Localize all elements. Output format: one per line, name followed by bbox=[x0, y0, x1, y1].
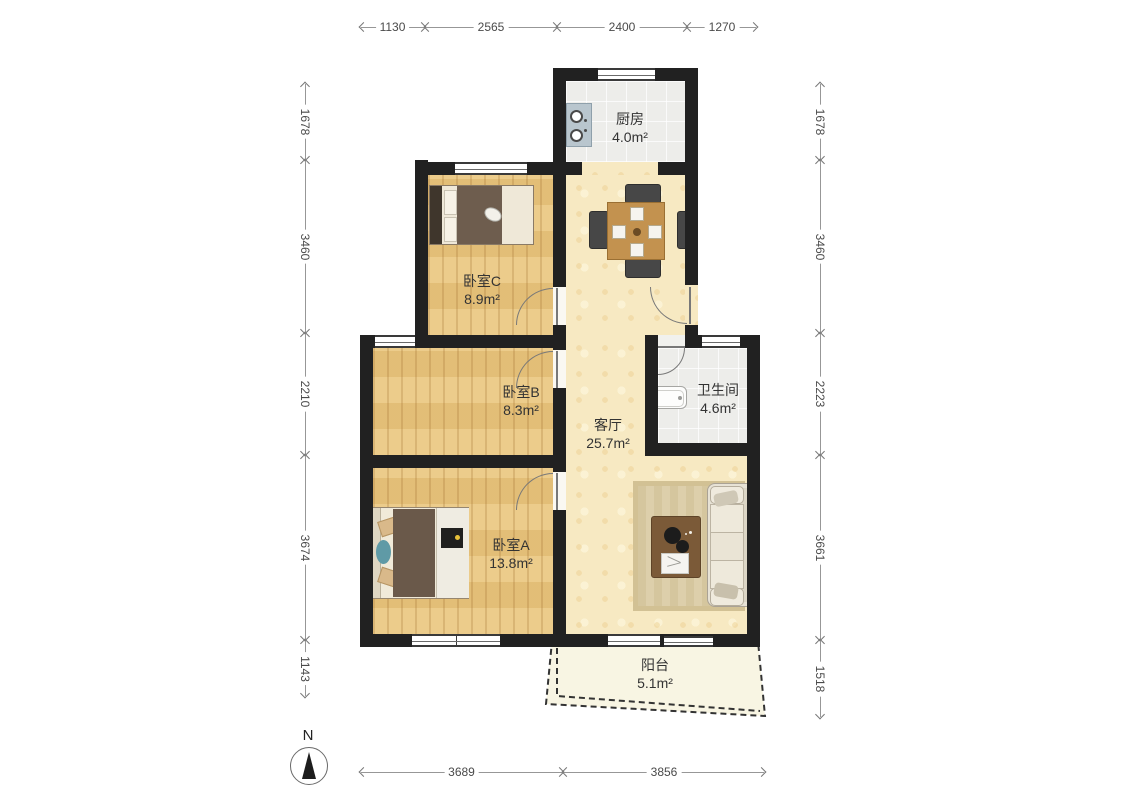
room-label-kitchen: 厨房 4.0m² bbox=[612, 110, 648, 146]
dim-bottom-1: 3689 bbox=[360, 764, 563, 780]
window-bedroom-c bbox=[455, 162, 527, 175]
room-label-bedroom-b: 卧室B 8.3m² bbox=[502, 383, 539, 419]
dim-right-4: 3661 bbox=[812, 455, 828, 640]
dim-top-2: 2565 bbox=[425, 19, 557, 35]
dining-chair bbox=[625, 258, 661, 278]
window-bedroom-b bbox=[375, 335, 415, 348]
dim-top-3: 2400 bbox=[557, 19, 687, 35]
dim-top-1: 1130 bbox=[360, 19, 425, 35]
dim-right-3: 2223 bbox=[812, 333, 828, 455]
wall bbox=[553, 68, 566, 287]
bed-bedroom-a bbox=[367, 507, 469, 599]
door-leaf-bathroom bbox=[658, 346, 685, 348]
window-living-2 bbox=[664, 636, 713, 647]
dim-right-1: 1678 bbox=[812, 83, 828, 160]
compass-north-label: N bbox=[303, 727, 314, 744]
room-label-living: 客厅 25.7m² bbox=[586, 416, 630, 452]
room-label-bedroom-c: 卧室C 8.9m² bbox=[463, 272, 501, 308]
dining-table bbox=[607, 202, 665, 260]
wall bbox=[685, 68, 698, 285]
wall bbox=[645, 335, 658, 456]
stove bbox=[566, 103, 592, 147]
window-living-1 bbox=[608, 634, 660, 647]
coffee-table bbox=[651, 516, 701, 578]
door-leaf-entry bbox=[689, 287, 691, 324]
dim-top-4: 1270 bbox=[687, 19, 757, 35]
dim-left-1: 1678 bbox=[297, 83, 313, 160]
wall bbox=[373, 455, 566, 468]
dim-left-5: 1143 bbox=[297, 640, 313, 697]
floor-plan: 厨房 4.0m² 卧室C 8.9m² 卧室B 8.3m² 卫生间 4.6m² 客… bbox=[0, 0, 1125, 800]
dim-right-2: 3460 bbox=[812, 160, 828, 333]
room-label-balcony: 阳台 5.1m² bbox=[637, 656, 673, 692]
dim-right-5: 1518 bbox=[812, 640, 828, 718]
bed-bedroom-c bbox=[429, 185, 534, 245]
wall bbox=[747, 335, 760, 647]
wall bbox=[553, 510, 566, 647]
dim-left-4: 3674 bbox=[297, 455, 313, 640]
room-label-bedroom-a: 卧室A 13.8m² bbox=[489, 536, 533, 572]
window-bathroom bbox=[702, 335, 740, 348]
window-kitchen bbox=[598, 68, 655, 81]
wall bbox=[415, 160, 428, 348]
dim-left-2: 3460 bbox=[297, 160, 313, 333]
bedroom-b-door-opening bbox=[553, 350, 566, 388]
wall bbox=[645, 443, 760, 456]
wall bbox=[360, 335, 373, 647]
bedroom-c-door-opening bbox=[553, 287, 566, 325]
door-leaf-bedroom-b bbox=[556, 351, 558, 388]
compass-icon bbox=[290, 747, 328, 785]
dim-bottom-2: 3856 bbox=[563, 764, 765, 780]
room-label-bathroom: 卫生间 4.6m² bbox=[697, 381, 739, 417]
door-leaf-bedroom-a bbox=[556, 473, 558, 510]
kitchen-opening bbox=[582, 162, 658, 175]
bedroom-a-door-opening bbox=[553, 472, 566, 510]
window-bedroom-a bbox=[412, 634, 500, 647]
dining-chair bbox=[625, 184, 661, 204]
dining-chair bbox=[589, 211, 609, 249]
door-leaf-bedroom-c bbox=[556, 288, 558, 325]
dim-left-3: 2210 bbox=[297, 333, 313, 455]
compass-needle-icon bbox=[302, 752, 316, 779]
